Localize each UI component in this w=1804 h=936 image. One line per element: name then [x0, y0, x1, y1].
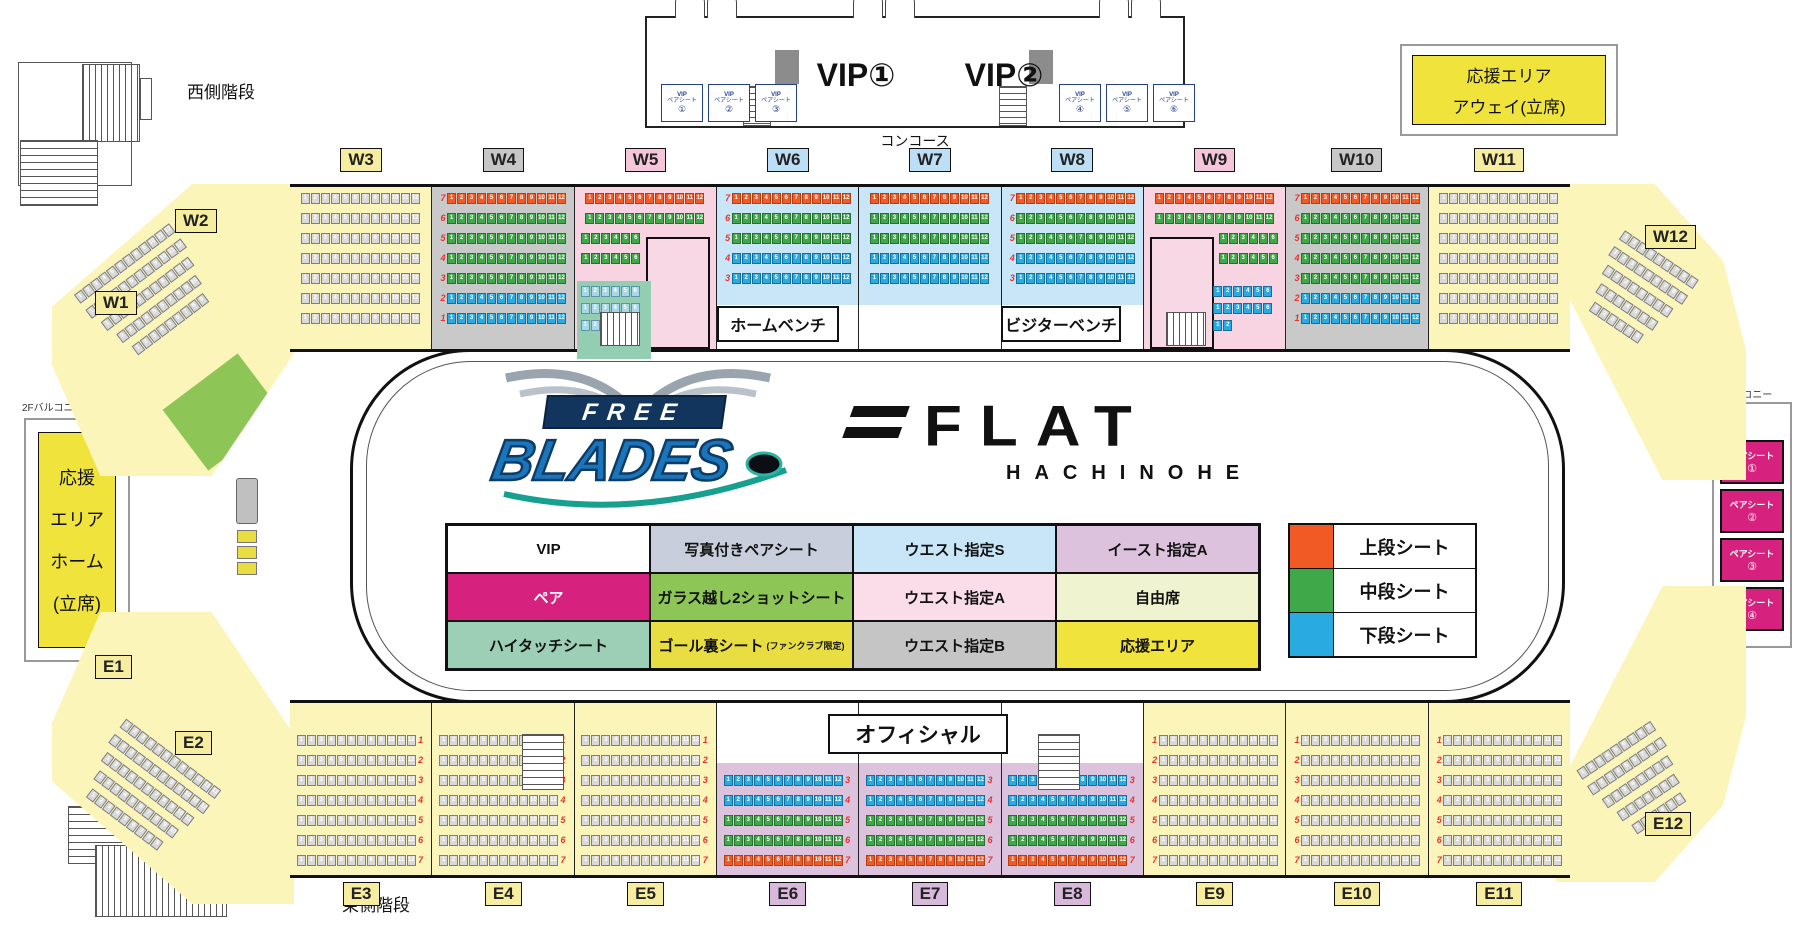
- door-arc-icon: [885, 0, 915, 18]
- seat-row: 1234567891011126: [437, 835, 569, 846]
- seat: 8: [509, 835, 518, 846]
- seat: 7: [357, 815, 366, 826]
- seat-row: 2123456789101112: [1291, 293, 1423, 304]
- seat: 8: [1509, 253, 1518, 264]
- seat: 9: [1239, 855, 1248, 866]
- seat: 7: [1068, 815, 1077, 826]
- seat: 10: [1098, 855, 1107, 866]
- seat: 12: [557, 213, 566, 224]
- seat: 1: [447, 213, 456, 224]
- seat: 11: [397, 735, 406, 746]
- seat: 5: [621, 815, 630, 826]
- seat: 11: [1543, 855, 1552, 866]
- seat: 8: [940, 213, 949, 224]
- seat: 6: [1209, 755, 1218, 766]
- seat-row: 123456789101112: [864, 213, 996, 224]
- seat: 7: [1499, 213, 1508, 224]
- seat: 2: [1026, 193, 1035, 204]
- row-number: 6: [1293, 835, 1301, 846]
- seat: 3: [459, 835, 468, 846]
- section-label-W12: W12: [1645, 225, 1696, 249]
- seat: 4: [1331, 233, 1340, 244]
- seat: 6: [497, 253, 506, 264]
- seat-row: 3123456789101112: [722, 273, 854, 284]
- seat: 7: [361, 253, 370, 264]
- seat: 11: [1401, 213, 1410, 224]
- seat: 10: [1533, 855, 1542, 866]
- row-number: 6: [439, 213, 447, 224]
- seat: 11: [832, 213, 841, 224]
- seat: 4: [1331, 193, 1340, 204]
- seat: 11: [1259, 735, 1268, 746]
- seat: 6: [1209, 775, 1218, 786]
- seat: 2: [742, 193, 751, 204]
- seat: 9: [1381, 273, 1390, 284]
- seat: 10: [814, 775, 823, 786]
- seat: 10: [1249, 835, 1258, 846]
- seat: 10: [671, 855, 680, 866]
- seat: 11: [966, 795, 975, 806]
- seat: 1: [1159, 855, 1168, 866]
- seat: 4: [1331, 815, 1340, 826]
- seat: 10: [675, 213, 684, 224]
- seat: 9: [1239, 795, 1248, 806]
- seat: 5: [906, 815, 915, 826]
- seat: 1: [1301, 233, 1310, 244]
- seat: 11: [1543, 795, 1552, 806]
- seat-row: 1234567891011127: [579, 855, 711, 866]
- seat: 9: [377, 775, 386, 786]
- seat: 5: [1341, 253, 1350, 264]
- seat: 6: [1493, 755, 1502, 766]
- seat: 3: [1463, 835, 1472, 846]
- seat: 5: [1199, 755, 1208, 766]
- seat: 4: [900, 233, 909, 244]
- section-label-E10: E10: [1334, 882, 1380, 906]
- seat: 4: [477, 293, 486, 304]
- seat-rows: 1234567891011121123456789101112212345678…: [290, 703, 431, 866]
- seat-row: 123456: [1213, 286, 1279, 297]
- seat: 11: [401, 313, 410, 324]
- seat: 11: [1539, 293, 1548, 304]
- seat: 1: [1439, 293, 1448, 304]
- seat: 2: [449, 855, 458, 866]
- seat: 6: [1209, 855, 1218, 866]
- seat: 9: [950, 233, 959, 244]
- seat: 2: [457, 273, 466, 284]
- seat: 6: [1066, 213, 1075, 224]
- seat: 5: [341, 313, 350, 324]
- seat-row: 123456789101112: [295, 213, 427, 224]
- seat: 12: [834, 815, 843, 826]
- seat-row: 1234567891011124: [295, 795, 427, 806]
- seat: 4: [327, 755, 336, 766]
- seat: 6: [1351, 835, 1360, 846]
- seat: 6: [774, 775, 783, 786]
- seat: 4: [1189, 755, 1198, 766]
- seat: 3: [601, 815, 610, 826]
- seat: 11: [1255, 193, 1264, 204]
- seat: 10: [1106, 233, 1115, 244]
- section-E9: 1123456789101112212345678910111231234567…: [1143, 703, 1285, 875]
- concourse: VIPペアシート①VIPペアシート②VIPペアシート③ VIPペアシート④VIP…: [645, 16, 1185, 128]
- seat-row: 123456789101112: [1433, 313, 1565, 324]
- seat: 2: [734, 775, 743, 786]
- seat: 8: [1371, 835, 1380, 846]
- seat: 7: [1361, 815, 1370, 826]
- seat: 1: [581, 755, 590, 766]
- seat: 10: [822, 233, 831, 244]
- seat: 11: [1401, 755, 1410, 766]
- seat: 8: [1371, 815, 1380, 826]
- seat-row: 123456: [1147, 233, 1283, 244]
- seat: 2: [1311, 735, 1320, 746]
- section-E3: 1234567891011121123456789101112212345678…: [290, 703, 431, 875]
- seat: 11: [401, 213, 410, 224]
- seat: 10: [1391, 855, 1400, 866]
- seat: 8: [367, 775, 376, 786]
- seat: 7: [1076, 273, 1085, 284]
- row-number: 5: [559, 815, 567, 826]
- seat: 7: [1503, 855, 1512, 866]
- row-number: 6: [701, 835, 709, 846]
- seat: 10: [1098, 815, 1107, 826]
- seat: 6: [351, 193, 360, 204]
- seat: 5: [1483, 735, 1492, 746]
- seat: 2: [307, 775, 316, 786]
- row-number: 5: [1008, 233, 1016, 244]
- seat: 2: [1169, 855, 1178, 866]
- chip-cell: E4: [432, 882, 574, 906]
- seat: 6: [347, 755, 356, 766]
- seat: 8: [794, 815, 803, 826]
- seat: 10: [1533, 815, 1542, 826]
- seat: 9: [946, 775, 955, 786]
- seat: 2: [449, 795, 458, 806]
- band-stairs: [1166, 312, 1206, 346]
- seat: 7: [1219, 815, 1228, 826]
- seat: 9: [1096, 213, 1105, 224]
- seat: 12: [976, 815, 985, 826]
- seat: 7: [1503, 835, 1512, 846]
- seat: 10: [675, 193, 684, 204]
- seat: 11: [1108, 775, 1117, 786]
- seat: 2: [1453, 855, 1462, 866]
- seat: 2: [457, 213, 466, 224]
- seat-row: 123456: [1213, 303, 1279, 314]
- seat: 8: [1229, 795, 1238, 806]
- seat: 9: [1381, 775, 1390, 786]
- seat: 12: [1118, 835, 1127, 846]
- seat: 3: [1459, 213, 1468, 224]
- seat: 2: [1026, 253, 1035, 264]
- seat: 3: [1321, 815, 1330, 826]
- seat: 10: [391, 213, 400, 224]
- seat: 5: [487, 193, 496, 204]
- seat: 8: [1086, 253, 1095, 264]
- seat: 9: [381, 193, 390, 204]
- row-number: 4: [439, 253, 447, 264]
- seat: 4: [1469, 193, 1478, 204]
- seat-row: 123456789101112: [1433, 193, 1565, 204]
- seat: 10: [814, 835, 823, 846]
- seat: 3: [459, 855, 468, 866]
- seat: 5: [625, 213, 634, 224]
- row-number: 4: [1128, 795, 1136, 806]
- seat: 1: [1219, 233, 1228, 244]
- away-standing-area-box: 応援エリア アウェイ(立席): [1400, 44, 1618, 136]
- seat: 8: [940, 253, 949, 264]
- seat: 7: [1068, 835, 1077, 846]
- seat: 11: [547, 253, 556, 264]
- row-number: 2: [1151, 755, 1159, 766]
- seat: 1: [297, 755, 306, 766]
- seat: 3: [744, 815, 753, 826]
- seat: 12: [691, 755, 700, 766]
- seat: 5: [1341, 233, 1350, 244]
- vip-pair-seat-box: VIPペアシート③: [755, 84, 797, 122]
- seat: 3: [886, 835, 895, 846]
- west-seating-band: 1234567891011121234567891011121234567891…: [290, 184, 1570, 352]
- seat-row: 123456789101112: [864, 253, 996, 264]
- seat: 4: [1331, 755, 1340, 766]
- legend-cell-label: VIP: [536, 541, 560, 558]
- seat: 11: [1255, 213, 1264, 224]
- seat: 11: [1539, 193, 1548, 204]
- seat: 7: [1361, 795, 1370, 806]
- row-number: 5: [986, 815, 994, 826]
- seat: 1: [866, 855, 875, 866]
- seat: 4: [469, 835, 478, 846]
- seat: 12: [411, 273, 420, 284]
- seat: 1: [439, 775, 448, 786]
- section-label-W10: W10: [1331, 148, 1382, 172]
- legend-cell: 応援エリア: [1056, 621, 1259, 669]
- seat: 2: [449, 835, 458, 846]
- seat: 9: [1519, 273, 1528, 284]
- seat: 1: [581, 233, 590, 244]
- seat: 1: [1301, 815, 1310, 826]
- seat: 8: [794, 855, 803, 866]
- seat: 12: [407, 775, 416, 786]
- seat: 5: [621, 855, 630, 866]
- seat: 5: [479, 855, 488, 866]
- seat: 5: [1056, 193, 1065, 204]
- seat: 3: [1179, 755, 1188, 766]
- seat: 7: [641, 775, 650, 786]
- seat: 12: [1126, 193, 1135, 204]
- west-stairs-tab: [140, 78, 152, 120]
- seat: 8: [1509, 193, 1518, 204]
- seat: 5: [487, 293, 496, 304]
- seat: 6: [1066, 233, 1075, 244]
- seat: 3: [1239, 233, 1248, 244]
- seat: 12: [411, 213, 420, 224]
- seat: 1: [1008, 795, 1017, 806]
- row-number: 2: [417, 755, 425, 766]
- seat: 10: [1249, 735, 1258, 746]
- seat: 12: [980, 193, 989, 204]
- seat: 6: [1351, 755, 1360, 766]
- seat: 11: [681, 815, 690, 826]
- seat: 6: [1489, 193, 1498, 204]
- seat: 7: [361, 193, 370, 204]
- seat: 10: [1529, 273, 1538, 284]
- vip-pair-number: ④: [1076, 105, 1084, 114]
- legend-cell-label: ペア: [533, 587, 563, 608]
- seat: 8: [802, 233, 811, 244]
- seat: 12: [549, 815, 558, 826]
- seat: 8: [367, 835, 376, 846]
- seat-row: 3123456789101112: [1006, 273, 1138, 284]
- row-number: 3: [439, 273, 447, 284]
- seat: 1: [1155, 213, 1164, 224]
- seat: 10: [956, 795, 965, 806]
- seat: 8: [802, 273, 811, 284]
- seat: 6: [631, 815, 640, 826]
- seat: 9: [377, 855, 386, 866]
- seat: 5: [341, 193, 350, 204]
- seat: 8: [1509, 293, 1518, 304]
- seat: 9: [1523, 835, 1532, 846]
- seat: 6: [351, 293, 360, 304]
- row-number: 6: [844, 835, 852, 846]
- seat: 10: [1106, 273, 1115, 284]
- seat-row: 5123456789101112: [1291, 815, 1423, 826]
- seat: 2: [880, 253, 889, 264]
- seat: 9: [377, 815, 386, 826]
- seat: 11: [1401, 795, 1410, 806]
- seat: 11: [824, 775, 833, 786]
- seat: 1: [1301, 193, 1310, 204]
- seat-row: 123456789101112: [295, 253, 427, 264]
- seat: 4: [1046, 273, 1055, 284]
- seat: 4: [1469, 253, 1478, 264]
- seat: 1: [870, 273, 879, 284]
- seat: 12: [411, 313, 420, 324]
- seat: 3: [752, 253, 761, 264]
- seat: 5: [621, 233, 630, 244]
- seat: 1: [1008, 775, 1017, 786]
- seat: 9: [1523, 755, 1532, 766]
- seat: 12: [980, 253, 989, 264]
- seat: 2: [307, 755, 316, 766]
- seat-row: 5123456789101112: [722, 233, 854, 244]
- seat-row: 123456789101112: [1433, 253, 1565, 264]
- chip-cell: E5: [574, 882, 716, 906]
- seat: 5: [1483, 775, 1492, 786]
- row-number: 5: [417, 815, 425, 826]
- seat: 6: [1066, 193, 1075, 204]
- seat: 2: [307, 835, 316, 846]
- seat: 9: [1088, 835, 1097, 846]
- seat: 7: [1361, 755, 1370, 766]
- legend-cell: 自由席: [1056, 573, 1259, 621]
- seat: 3: [605, 213, 614, 224]
- seat: 2: [591, 775, 600, 786]
- seat: 7: [357, 775, 366, 786]
- seat: 11: [681, 775, 690, 786]
- seat: 2: [1311, 775, 1320, 786]
- section-W4: 7123456789101112612345678910111251234567…: [431, 187, 573, 349]
- seat-row: 6123456789101112: [722, 213, 854, 224]
- seat: 7: [361, 293, 370, 304]
- corner-section-west-left: 1234567891011121234567891011121234567891…: [52, 184, 294, 476]
- seat: 11: [824, 815, 833, 826]
- seat: 4: [1189, 855, 1198, 866]
- seat: 3: [317, 835, 326, 846]
- west-section-labels: W3W4W5W6W7W8W9W10W11: [290, 148, 1570, 172]
- seat: 10: [956, 775, 965, 786]
- seat: 11: [401, 273, 410, 284]
- row-number: 4: [1008, 253, 1016, 264]
- seat: 9: [946, 835, 955, 846]
- seat: 8: [1086, 213, 1095, 224]
- row-number: 3: [986, 775, 994, 786]
- seat: 11: [1116, 273, 1125, 284]
- seat: 12: [407, 835, 416, 846]
- seat: 2: [880, 233, 889, 244]
- seat: 8: [367, 755, 376, 766]
- seat: 6: [631, 233, 640, 244]
- seat: 3: [1028, 815, 1037, 826]
- seat: 12: [976, 855, 985, 866]
- seat: 7: [499, 755, 508, 766]
- seat: 3: [1321, 213, 1330, 224]
- seat: 12: [1411, 253, 1420, 264]
- seat: 6: [920, 213, 929, 224]
- seat: 4: [1046, 193, 1055, 204]
- seat: 11: [970, 253, 979, 264]
- seat: 1: [1439, 253, 1448, 264]
- seat: 4: [1038, 855, 1047, 866]
- seat: 1: [1219, 253, 1228, 264]
- seat: 3: [317, 775, 326, 786]
- seat: 2: [1223, 286, 1232, 297]
- seat: 3: [1028, 795, 1037, 806]
- row-number: 3: [701, 775, 709, 786]
- seat: 5: [1341, 213, 1350, 224]
- seat: 12: [407, 735, 416, 746]
- seat: 1: [870, 213, 879, 224]
- seat: 8: [1078, 835, 1087, 846]
- seat: 10: [1533, 795, 1542, 806]
- seat-rows: 1234567891011121234567891011121234561234…: [575, 187, 716, 264]
- seat: 6: [1209, 815, 1218, 826]
- flat-mark-icon: [842, 406, 910, 438]
- seat: 12: [1411, 735, 1420, 746]
- seat: 12: [980, 273, 989, 284]
- seat: 5: [1048, 815, 1057, 826]
- seat: 6: [920, 253, 929, 264]
- seat: 7: [1361, 273, 1370, 284]
- seat: 2: [591, 835, 600, 846]
- seat: 8: [371, 233, 380, 244]
- seat: 8: [794, 835, 803, 846]
- seat-row: 1123456789101112: [1291, 735, 1423, 746]
- seat: 6: [916, 815, 925, 826]
- seat: 12: [407, 855, 416, 866]
- seat: 8: [1513, 795, 1522, 806]
- row-number: 1: [1151, 735, 1159, 746]
- vip-pair-seat-group-right: VIPペアシート④VIPペアシート⑤VIPペアシート⑥: [1059, 84, 1195, 122]
- seat: 9: [1239, 755, 1248, 766]
- seat: 12: [1269, 835, 1278, 846]
- seat: 8: [509, 795, 518, 806]
- seat: 10: [1391, 193, 1400, 204]
- seat: 1: [439, 815, 448, 826]
- seat: 12: [549, 835, 558, 846]
